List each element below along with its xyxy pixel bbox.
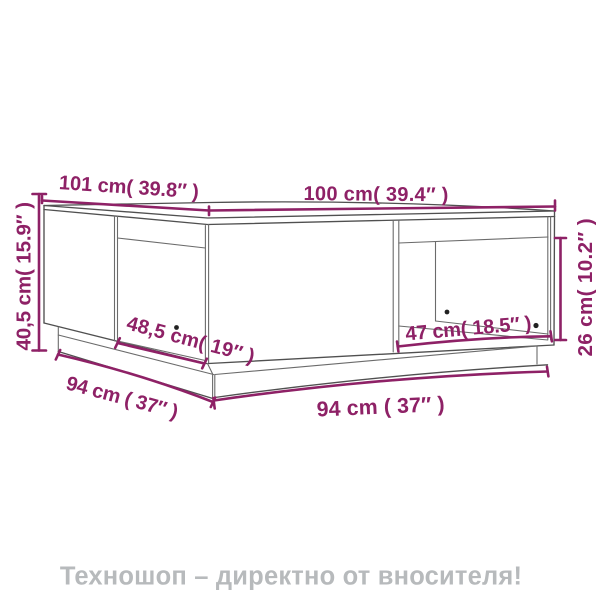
svg-text:Техношоп – директно от вносите: Техношоп – директно от вносителя! xyxy=(60,563,522,591)
svg-text:26 cm( 10.2″ ): 26 cm( 10.2″ ) xyxy=(574,218,597,356)
svg-text:100 cm( 39.4″ ): 100 cm( 39.4″ ) xyxy=(303,183,448,206)
svg-text:40,5 cm( 15.9″ ): 40,5 cm( 15.9″ ) xyxy=(13,202,36,350)
